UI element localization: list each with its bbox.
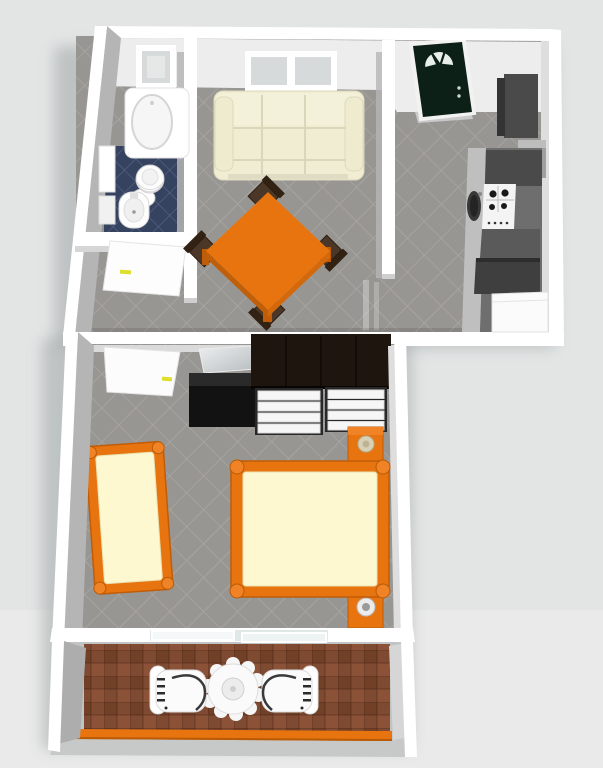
entry-door	[411, 40, 474, 123]
black-sideboard	[189, 373, 255, 427]
drawer	[328, 401, 384, 410]
drawer	[258, 402, 320, 411]
drawer	[258, 413, 320, 422]
wardrobe	[251, 334, 391, 389]
bed-post	[230, 584, 244, 598]
drawer	[258, 391, 320, 400]
cooktop	[482, 184, 516, 229]
patio-chair	[150, 666, 206, 714]
bedroom-door-open	[104, 347, 180, 396]
white-appliance	[492, 292, 548, 332]
bathroom-window	[136, 45, 176, 89]
sliding-panel	[242, 633, 326, 642]
balcony	[48, 628, 417, 757]
knob	[506, 222, 509, 225]
bathroom-wall-cabinet	[99, 146, 115, 224]
sink-drain	[132, 210, 136, 214]
faucet	[478, 192, 482, 196]
door-handle	[120, 270, 131, 275]
drawer-chest	[255, 388, 323, 435]
tub-drain	[150, 101, 154, 105]
tall-cabinet	[504, 74, 538, 138]
sofa-armrest	[345, 97, 363, 171]
drawer	[258, 424, 320, 433]
sofa-armrest	[215, 97, 233, 171]
patio-chair	[262, 666, 318, 714]
door-handle	[457, 86, 460, 89]
burner	[489, 204, 495, 210]
pedestal-sink	[119, 192, 149, 228]
main-unit	[63, 26, 564, 346]
knob	[500, 222, 503, 225]
double-bed	[230, 460, 390, 598]
drawer	[328, 390, 384, 399]
mattress	[243, 472, 377, 586]
bathtub	[125, 88, 189, 158]
bed-post	[93, 582, 106, 595]
floorplan-screenshot	[0, 0, 603, 768]
sliding-glass-door	[150, 630, 328, 642]
floor-light-streak	[363, 280, 369, 330]
bed-post	[376, 460, 390, 474]
burner	[501, 203, 507, 209]
bath-divider-wall	[184, 38, 197, 302]
bed-post	[152, 441, 165, 454]
kitchen-divider-face	[376, 52, 383, 278]
wall-mirror	[199, 346, 256, 373]
sofa-back	[216, 93, 362, 125]
bed-post	[376, 584, 390, 598]
kitchen-divider-wall	[382, 40, 395, 278]
door-handle	[162, 377, 172, 382]
sink-faucet	[130, 193, 138, 198]
floor-light-streak	[374, 282, 379, 330]
knob	[488, 222, 491, 225]
living-room-window	[245, 51, 337, 91]
bed-post	[161, 577, 174, 590]
floorplan-render	[0, 0, 603, 768]
burner	[501, 189, 508, 196]
nightstand	[348, 427, 383, 464]
sliding-panel	[152, 631, 234, 640]
balcony-outer-ledge	[50, 739, 408, 757]
drawer	[328, 411, 384, 420]
sofa	[214, 91, 364, 180]
bedroom	[52, 332, 413, 641]
burner	[489, 190, 496, 197]
mattress	[96, 452, 163, 584]
bathroom-door-open	[103, 241, 186, 296]
single-bed	[84, 441, 174, 594]
knob	[494, 222, 497, 225]
drawer-chest	[325, 387, 387, 432]
bed-post	[230, 460, 244, 474]
refrigerator-cabinet	[474, 258, 540, 294]
